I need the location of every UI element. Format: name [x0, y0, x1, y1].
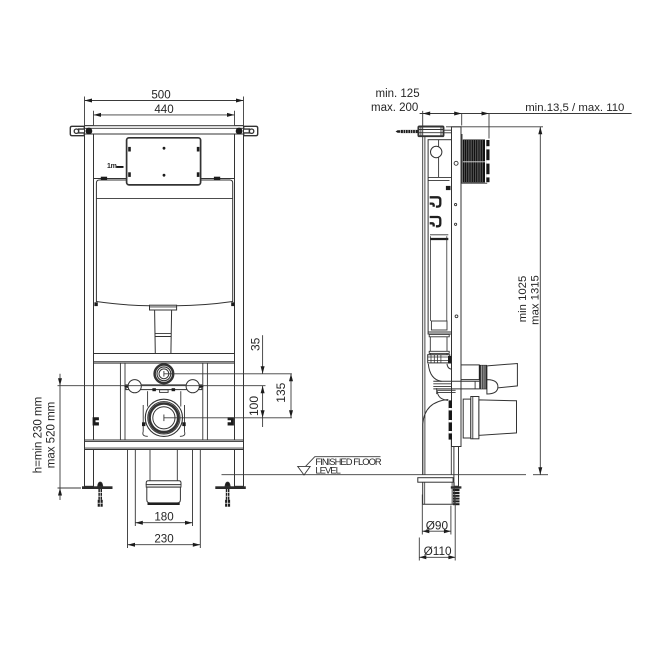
- svg-text:Ø90: Ø90: [426, 518, 449, 532]
- svg-text:LEVEL: LEVEL: [315, 465, 340, 476]
- svg-text:min 1025: min 1025: [517, 276, 529, 322]
- svg-text:Ø110: Ø110: [424, 544, 452, 558]
- svg-text:100: 100: [247, 396, 261, 416]
- svg-text:440: 440: [154, 103, 173, 116]
- svg-text:max 1315: max 1315: [530, 275, 542, 325]
- svg-text:max 520 mm: max 520 mm: [46, 402, 58, 468]
- svg-text:135: 135: [274, 382, 288, 402]
- svg-text:1m: 1m: [107, 163, 117, 170]
- svg-text:min. 125: min. 125: [375, 88, 419, 100]
- svg-text:180: 180: [154, 510, 173, 523]
- svg-text:h=min 230 mm: h=min 230 mm: [33, 397, 45, 473]
- svg-text:230: 230: [154, 532, 173, 545]
- svg-text:max. 200: max. 200: [371, 102, 418, 114]
- svg-text:min.13,5 / max. 110: min.13,5 / max. 110: [525, 102, 624, 114]
- svg-text:35: 35: [249, 337, 263, 351]
- svg-text:500: 500: [151, 89, 170, 102]
